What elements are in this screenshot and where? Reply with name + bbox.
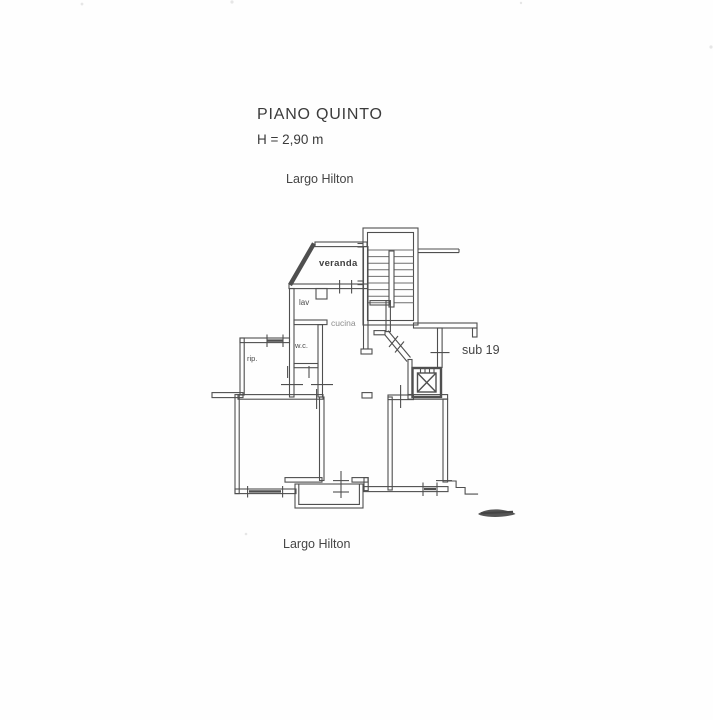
bedroom-right-walls <box>364 395 478 494</box>
balcony <box>295 471 363 508</box>
entry-hall-walls <box>370 301 477 400</box>
elevator-shaft <box>413 368 442 398</box>
bedroom-left-walls <box>235 395 368 494</box>
scanned-floor-plan-page: PIANO QUINTO H = 2,90 m Largo Hilton Lar… <box>0 0 713 720</box>
room-label-lav: lav <box>299 299 309 308</box>
street-label-bottom: Largo Hilton <box>283 538 350 552</box>
room-label-cucina: cucina <box>331 319 356 328</box>
unit-label-sub19: sub 19 <box>462 344 500 358</box>
scan-noise <box>81 0 713 535</box>
staircase <box>358 228 460 325</box>
ink-smudge <box>478 509 516 517</box>
room-label-veranda: veranda <box>319 259 358 269</box>
ceiling-height-note: H = 2,90 m <box>257 133 323 148</box>
room-label-wc: w.c. <box>295 342 308 350</box>
floor-title: PIANO QUINTO <box>257 106 383 124</box>
street-label-top: Largo Hilton <box>286 173 353 187</box>
room-label-rip: rip. <box>247 355 257 363</box>
